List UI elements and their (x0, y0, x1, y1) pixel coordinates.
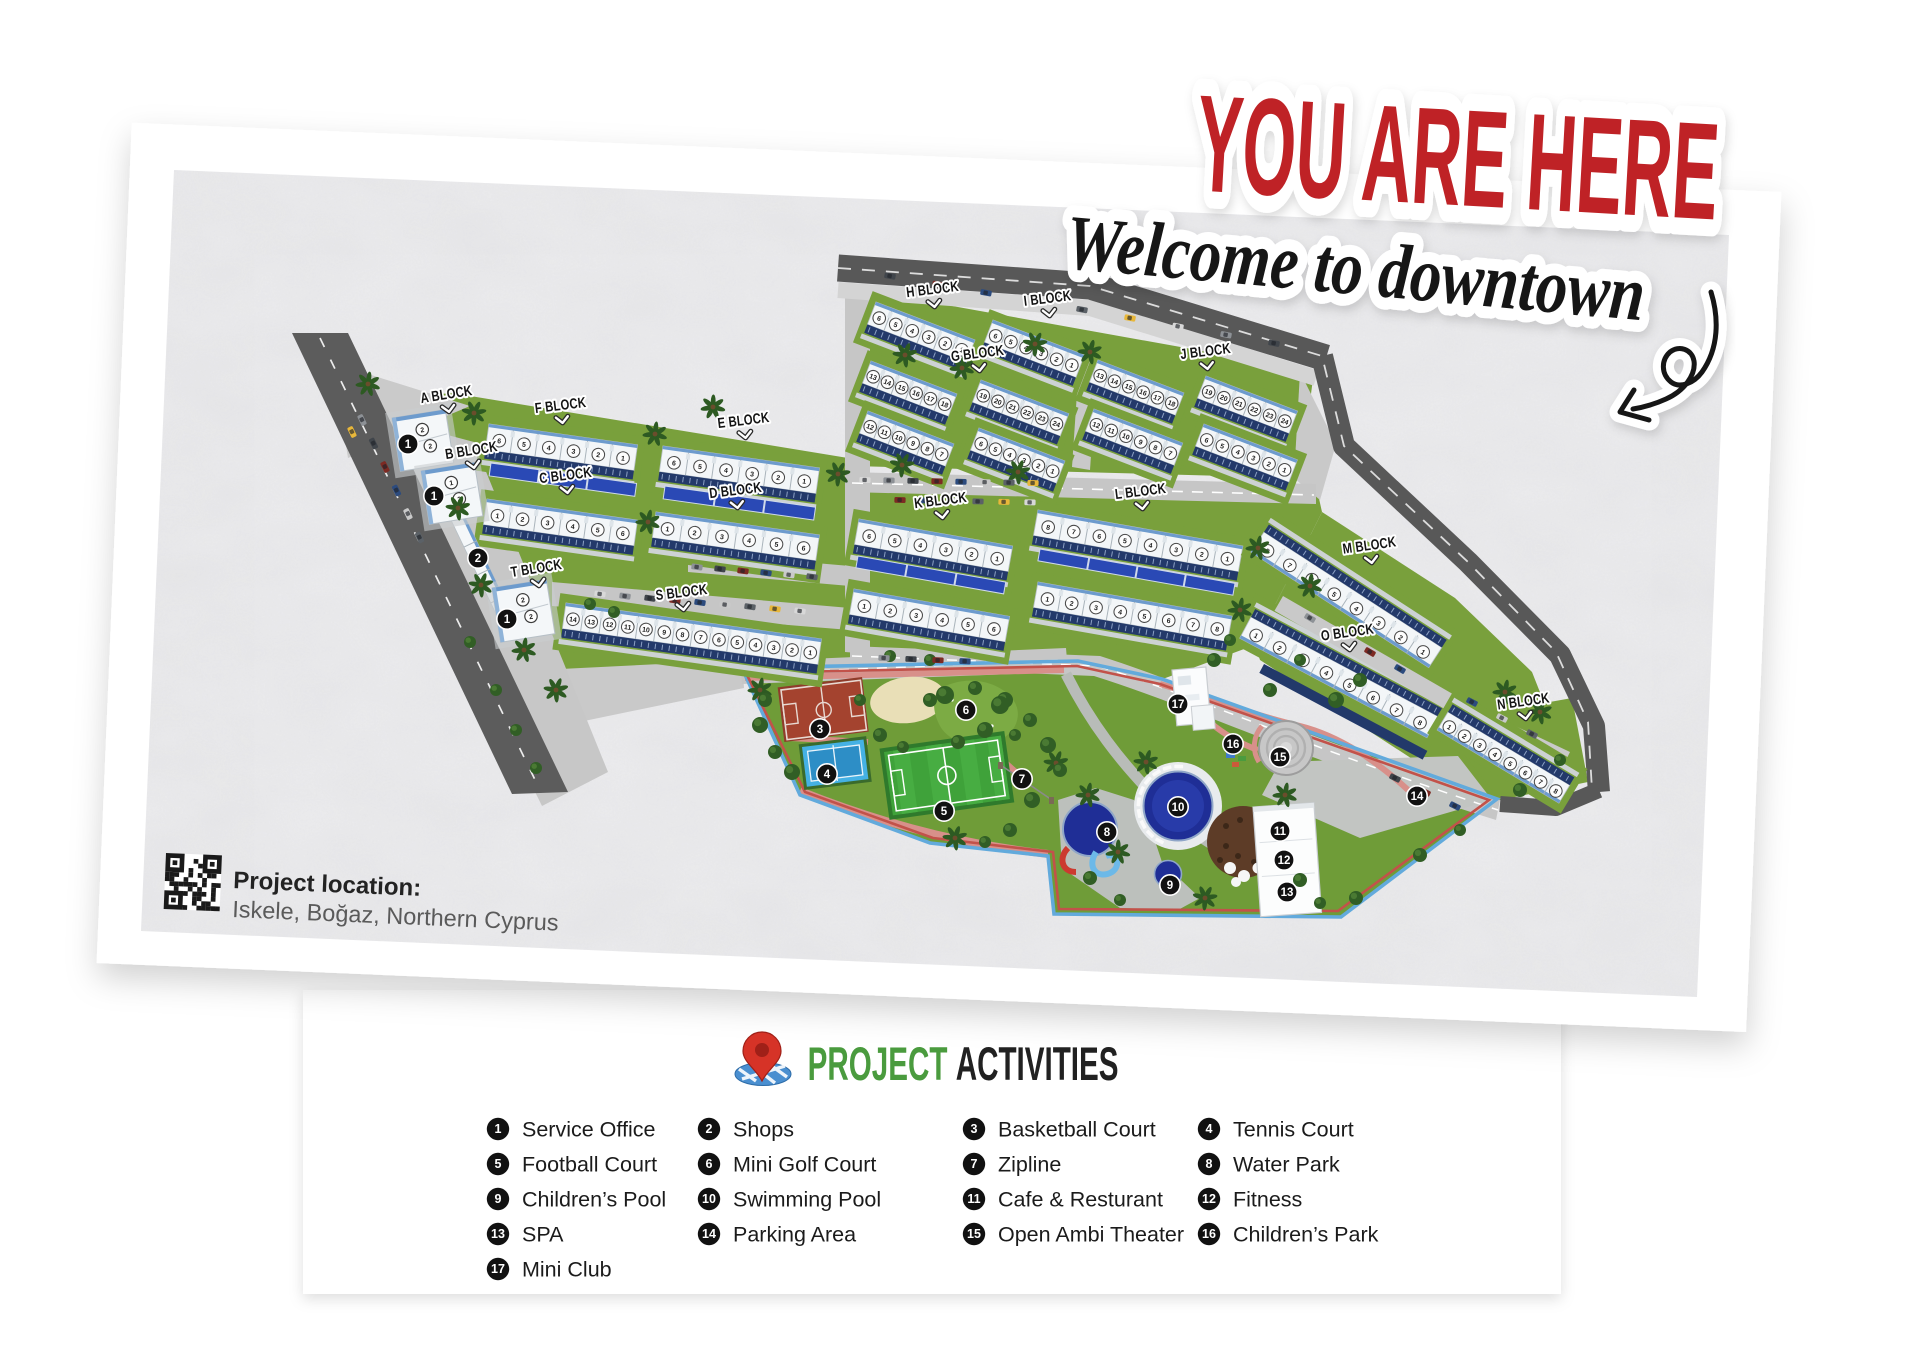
svg-text:Basketball Court: Basketball Court (998, 1118, 1156, 1142)
svg-text:3: 3 (971, 1122, 978, 1136)
svg-text:8: 8 (1206, 1157, 1213, 1171)
svg-text:Fitness: Fitness (1233, 1188, 1302, 1212)
svg-text:Children’s Park: Children’s Park (1233, 1223, 1379, 1247)
svg-text:Water Park: Water Park (1233, 1153, 1340, 1177)
svg-text:4: 4 (1206, 1122, 1213, 1136)
svg-text:2: 2 (475, 553, 481, 565)
svg-text:13: 13 (491, 1227, 505, 1241)
svg-text:Tennis Court: Tennis Court (1233, 1118, 1354, 1142)
svg-text:1: 1 (405, 439, 412, 451)
svg-text:17: 17 (491, 1262, 505, 1276)
svg-text:17: 17 (1172, 699, 1185, 711)
svg-text:11: 11 (624, 624, 632, 632)
svg-text:Cafe & Resturant: Cafe & Resturant (998, 1188, 1163, 1212)
svg-text:1: 1 (495, 1122, 502, 1136)
svg-text:Open Ambi Theater: Open Ambi Theater (998, 1223, 1184, 1247)
svg-text:PROJECT ACTIVITIES: PROJECT ACTIVITIES (808, 1038, 1119, 1091)
svg-text:1: 1 (504, 614, 511, 626)
svg-text:12: 12 (1278, 855, 1291, 867)
svg-text:6: 6 (706, 1157, 713, 1171)
svg-text:Swimming Pool: Swimming Pool (733, 1188, 881, 1212)
svg-text:9: 9 (1167, 880, 1173, 892)
svg-text:7: 7 (971, 1157, 978, 1171)
svg-text:Service Office: Service Office (522, 1118, 655, 1142)
svg-text:12: 12 (605, 621, 614, 629)
svg-text:Football Court: Football Court (522, 1153, 657, 1177)
svg-text:11: 11 (967, 1192, 980, 1206)
svg-text:14: 14 (702, 1227, 716, 1241)
svg-text:2: 2 (706, 1122, 713, 1136)
svg-text:Mini Club: Mini Club (522, 1258, 612, 1282)
svg-text:10: 10 (1172, 802, 1185, 814)
svg-text:Parking Area: Parking Area (733, 1223, 856, 1247)
svg-text:5: 5 (495, 1157, 502, 1171)
svg-text:15: 15 (967, 1227, 981, 1241)
svg-text:6: 6 (963, 705, 969, 717)
svg-text:3: 3 (817, 724, 823, 736)
svg-text:Zipline: Zipline (998, 1153, 1061, 1177)
svg-text:SPA: SPA (522, 1223, 564, 1247)
svg-text:10: 10 (702, 1192, 716, 1206)
svg-text:16: 16 (1227, 739, 1240, 751)
svg-text:Children’s Pool: Children’s Pool (522, 1188, 666, 1212)
svg-text:5: 5 (941, 806, 948, 818)
svg-text:9: 9 (495, 1192, 502, 1206)
svg-text:Shops: Shops (733, 1118, 794, 1142)
svg-text:4: 4 (824, 769, 831, 781)
svg-text:11: 11 (1274, 826, 1287, 838)
svg-text:1: 1 (431, 491, 438, 503)
svg-text:Mini Golf Court: Mini Golf Court (733, 1153, 876, 1177)
svg-text:8: 8 (1104, 827, 1111, 839)
svg-text:10: 10 (642, 627, 651, 635)
svg-text:15: 15 (1274, 752, 1287, 764)
svg-text:7: 7 (1019, 774, 1025, 786)
svg-text:13: 13 (1281, 887, 1294, 899)
svg-text:14: 14 (569, 616, 578, 624)
svg-text:16: 16 (1202, 1227, 1216, 1241)
svg-text:13: 13 (587, 619, 596, 627)
svg-text:14: 14 (1411, 791, 1424, 803)
svg-text:12: 12 (1202, 1192, 1216, 1206)
